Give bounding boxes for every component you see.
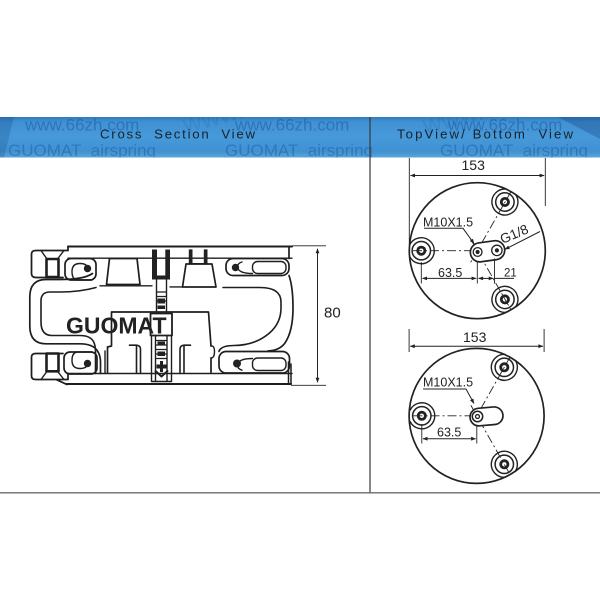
svg-text:GUOMAT airspring: GUOMAT airspring [8,141,156,160]
svg-text:153: 153 [462,157,486,173]
svg-text:63.5: 63.5 [437,426,461,440]
svg-text:21: 21 [504,267,517,279]
svg-text:GUOMAT airspring: GUOMAT airspring [225,141,373,160]
svg-text:M10X1.5: M10X1.5 [423,376,473,390]
svg-text:80: 80 [324,305,341,322]
svg-text:GUOMAT: GUOMAT [66,313,167,339]
svg-text:63.5: 63.5 [438,266,462,280]
svg-text:153: 153 [463,329,487,345]
svg-text:Cross Section View: Cross Section View [100,127,255,142]
svg-text:M10X1.5: M10X1.5 [423,215,473,229]
